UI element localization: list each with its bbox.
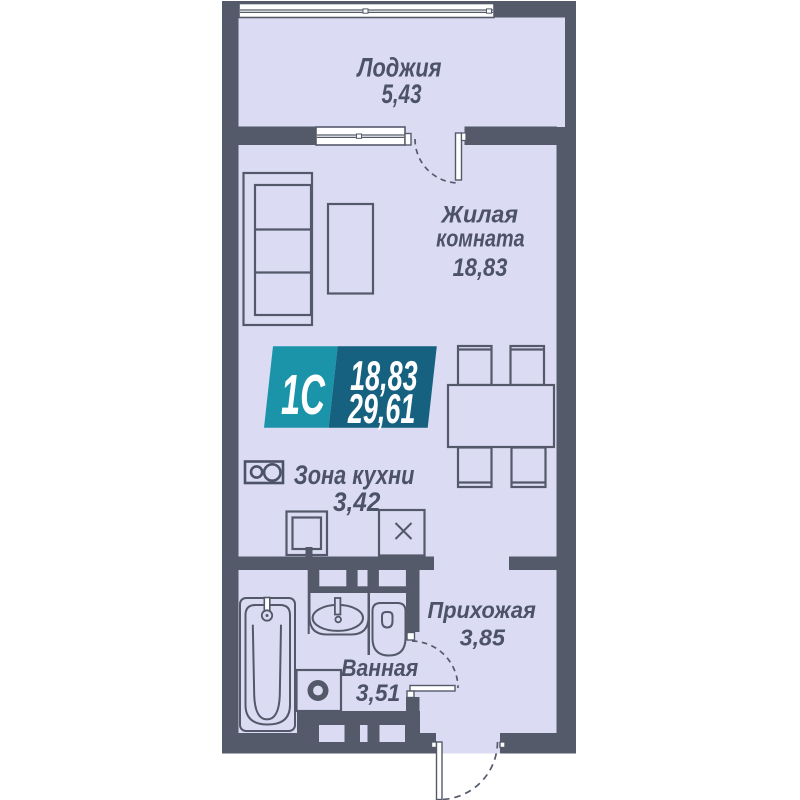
svg-text:3,85: 3,85 (460, 625, 507, 651)
svg-text:29,61: 29,61 (347, 385, 415, 432)
svg-text:Ванная: Ванная (341, 656, 418, 682)
svg-text:Прихожая: Прихожая (428, 597, 537, 623)
svg-text:18,83: 18,83 (453, 254, 508, 282)
svg-text:Жилая: Жилая (440, 202, 518, 229)
svg-text:комната: комната (436, 226, 525, 253)
svg-text:3,42: 3,42 (333, 487, 380, 517)
svg-text:3,51: 3,51 (356, 681, 401, 707)
svg-text:5,43: 5,43 (382, 79, 422, 109)
svg-text:Зона кухни: Зона кухни (294, 460, 415, 490)
svg-text:1С: 1С (281, 363, 325, 427)
